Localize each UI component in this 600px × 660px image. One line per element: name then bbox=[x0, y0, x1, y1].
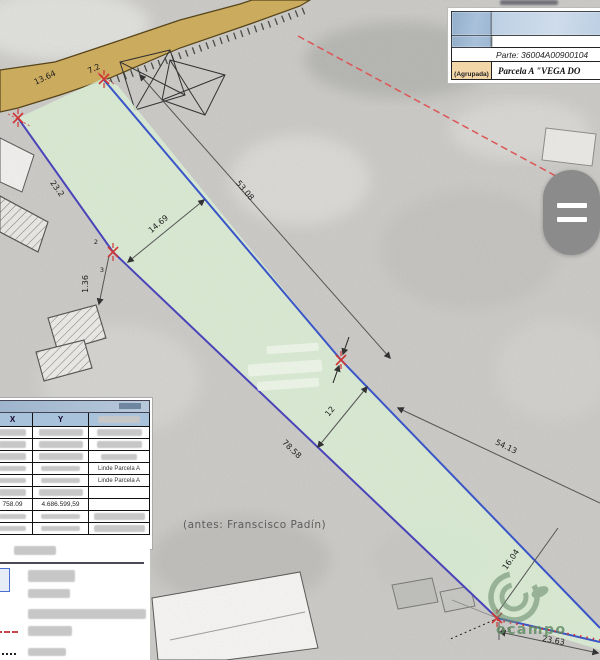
cadastral-map-view: 13.64 7.2 53.08 54.13 14.69 12 23.2 1.36… bbox=[0, 0, 600, 660]
column-header-y: Y bbox=[33, 413, 89, 426]
previous-owner-annotation: (antes: Franscisco Padín) bbox=[183, 519, 326, 531]
coords-table-titlebar bbox=[0, 400, 150, 413]
parcela-name: Parcela A "VEGA DO bbox=[492, 62, 600, 79]
table-row bbox=[0, 487, 149, 499]
y-coordinate-value: 4.686.599,59 bbox=[33, 499, 89, 510]
legend-panel bbox=[0, 535, 150, 660]
linde-parcela-label: Linde Parcela A bbox=[89, 475, 149, 486]
legend-item-text-redacted bbox=[28, 570, 75, 582]
menu-handle-button[interactable] bbox=[543, 170, 600, 255]
legend-divider bbox=[0, 562, 144, 564]
legend-item-text-redacted bbox=[28, 609, 146, 619]
coords-table-header: X Y bbox=[0, 413, 149, 427]
redacted-info-cell bbox=[492, 12, 600, 35]
parcel-info-panel: Parte: 36004A00900104 (Agrupada) Parcela… bbox=[448, 8, 600, 83]
x-coordinate-value: 758.09 bbox=[0, 499, 33, 510]
menu-icon bbox=[557, 203, 587, 208]
redacted-info-cell bbox=[492, 36, 600, 47]
coordinates-table-panel: X Y Linde Parcela A Linde Parcela A 758.… bbox=[0, 398, 152, 549]
legend-red-dashed-swatch bbox=[0, 631, 18, 633]
vertex-label-2: 2 bbox=[94, 238, 98, 246]
legend-parcel-swatch bbox=[0, 568, 10, 592]
table-row: Linde Parcela A bbox=[0, 475, 149, 487]
dim-1-36: 1.36 bbox=[81, 275, 90, 293]
ocampo-wordmark: ocampo bbox=[496, 622, 567, 638]
legend-item-text-redacted bbox=[28, 589, 70, 598]
vertex-label-3: 3 bbox=[100, 266, 104, 274]
column-header-x: X bbox=[0, 413, 33, 426]
parte-reference: Parte: 36004A00900104 bbox=[452, 50, 588, 60]
redacted-info-cell bbox=[452, 36, 492, 47]
legend-item-text-redacted bbox=[28, 626, 72, 636]
table-row bbox=[0, 427, 149, 439]
legend-item-text-redacted bbox=[28, 648, 66, 656]
table-row bbox=[0, 439, 149, 451]
column-header-redacted bbox=[89, 413, 149, 426]
table-row bbox=[0, 451, 149, 463]
table-row bbox=[0, 523, 149, 535]
menu-icon bbox=[557, 217, 587, 222]
redacted-title-text bbox=[500, 0, 558, 5]
linde-parcela-label: Linde Parcela A bbox=[89, 463, 149, 474]
redacted-info-cell bbox=[452, 12, 492, 35]
agrupada-label: (Agrupada) bbox=[452, 62, 492, 79]
table-row: Linde Parcela A bbox=[0, 463, 149, 475]
table-row: 758.09 4.686.599,59 bbox=[0, 499, 149, 511]
legend-title-redacted bbox=[14, 546, 56, 555]
table-row bbox=[0, 511, 149, 523]
legend-black-dotted-swatch bbox=[0, 653, 16, 655]
